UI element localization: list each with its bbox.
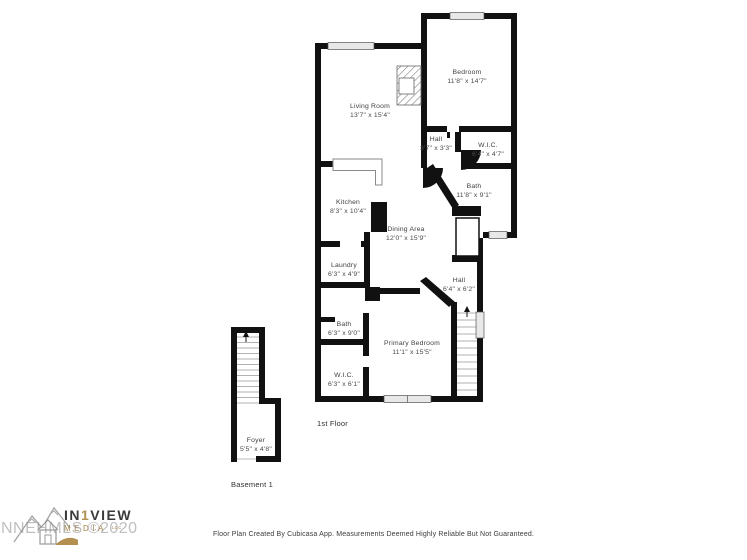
basement-stairs [237, 337, 259, 403]
bath-door-leaf [456, 218, 479, 256]
room-label-dining-area: Dining Area12'0" x 15'9" [386, 225, 426, 243]
first-floor-stairs [457, 313, 477, 390]
room-label-wic-lower: W.I.C.6'3" x 6'1" [328, 371, 360, 389]
room-label-wic-upper: W.I.C.6'4" x 4'7" [472, 141, 504, 159]
room-label-bath-upper: Bath11'8" x 9'1" [456, 182, 491, 200]
floor-plan-page: Living Room13'7" x 15'4" Bedroom11'8" x … [0, 0, 747, 560]
mls-watermark: NNEHMLS ©2020 [1, 520, 138, 538]
room-label-foyer: Foyer5'5" x 4'8" [240, 436, 272, 454]
floor-label-1st-floor: 1st Floor [317, 419, 348, 428]
room-label-hall-lower: Hall6'4" x 6'2" [443, 276, 475, 294]
room-label-bath-lower: Bath6'3" x 9'0" [328, 320, 360, 338]
room-label-living-room: Living Room13'7" x 15'4" [350, 102, 390, 120]
fireplace [397, 66, 421, 105]
floor-plan-drawing [0, 0, 747, 560]
room-label-laundry: Laundry6'3" x 4'9" [328, 261, 360, 279]
room-label-primary-bedroom: Primary Bedroom11'1" x 15'5" [384, 339, 440, 357]
room-label-hall-upper: Hall3'7" x 3'3" [420, 135, 452, 153]
room-label-bedroom: Bedroom11'8" x 14'7" [447, 68, 486, 86]
room-label-kitchen: Kitchen8'3" x 10'4" [330, 198, 366, 216]
floor-label-basement-1: Basement 1 [231, 480, 273, 489]
first-floor-stairs-arrow [464, 306, 470, 317]
kitchen-counter [333, 159, 382, 185]
